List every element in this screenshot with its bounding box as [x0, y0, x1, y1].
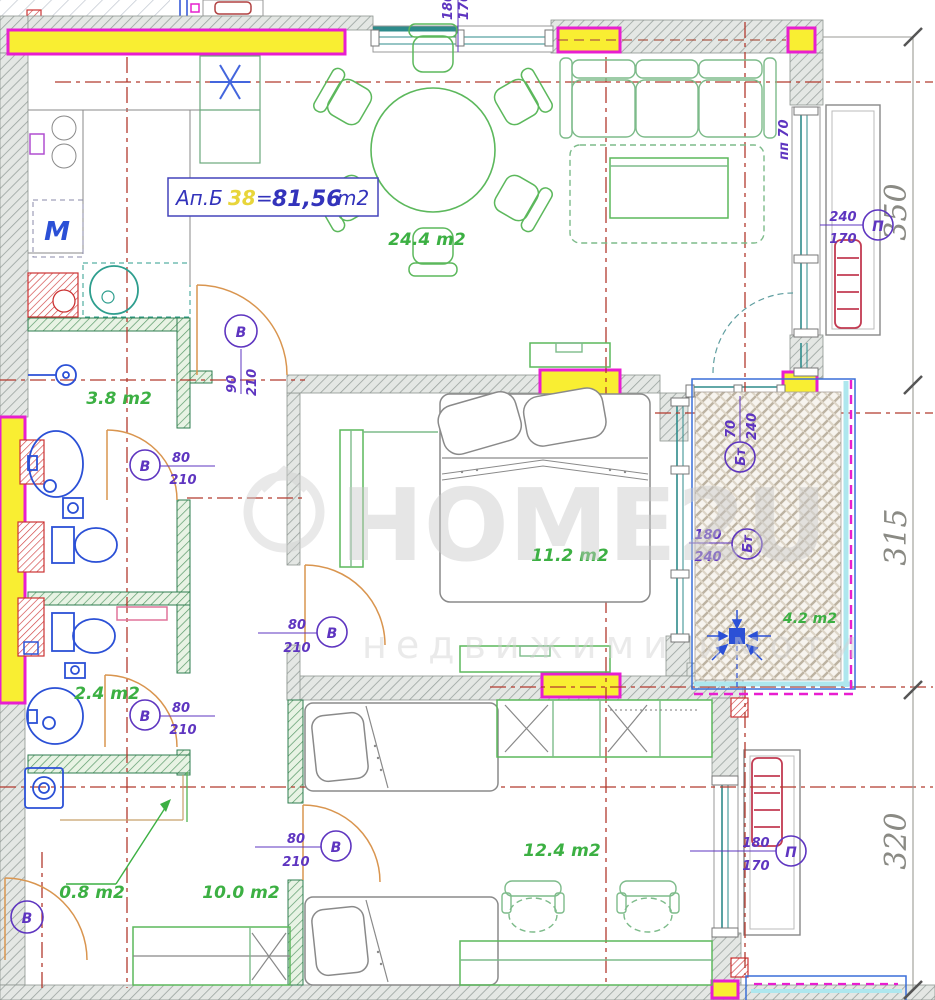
washing-machine [25, 768, 63, 808]
oven-handle [30, 134, 44, 154]
window-size-h: 170 [742, 859, 769, 874]
window-letter: П [785, 845, 797, 861]
door-letter: В [331, 840, 342, 856]
desk-chair-2 [617, 881, 679, 932]
pillow [311, 905, 370, 976]
dimension-320: 320 [879, 812, 914, 869]
kids-wardrobe [497, 700, 712, 757]
watermark-logo [248, 476, 320, 548]
washing-machine-label: М [44, 217, 70, 247]
room-label-kids: 12.4 m2 [523, 841, 600, 861]
watermark-subtitle: недвижими имоти [362, 623, 866, 667]
room-label-bathroom: 3.8 m2 [86, 389, 152, 409]
watermark-brand: HOME2U [340, 467, 827, 584]
balcony-door-letter: Бт [734, 447, 749, 466]
apartment-number: 38 [228, 186, 256, 210]
room-label-hallway: 10.0 m2 [202, 883, 279, 903]
door-size-h: 210 [169, 473, 196, 488]
radiator-right [835, 240, 861, 328]
burner [52, 144, 76, 168]
desk-chair-1 [502, 881, 564, 932]
snowflake-icon [210, 65, 250, 99]
door-size-h: 210 [282, 855, 309, 870]
apartment-area-unit: m2 [337, 186, 369, 210]
room-label-storage: 0.8 m2 [59, 883, 125, 903]
burner [52, 116, 76, 140]
kitchen-sink [90, 266, 138, 314]
balcony-door-swing [713, 293, 793, 373]
window-size-h: 170 [829, 232, 856, 247]
dining-table [371, 88, 495, 212]
top-window-w: 180 [441, 0, 456, 20]
door-size-w: 80 [288, 618, 306, 633]
apartment-label: Ап.Б [174, 186, 223, 210]
dimension-315: 315 [879, 508, 914, 565]
rug [570, 145, 764, 243]
title-box: Ап.Б 38 = 81,56 m2 [168, 178, 378, 216]
storage-leader-arrow [66, 799, 171, 884]
window-letter: П [872, 219, 884, 235]
floor-drain [63, 498, 83, 518]
room-label-living: 24.4 m2 [388, 230, 465, 250]
door-size-h: 210 [283, 641, 310, 656]
room-label-wc: 2.4 m2 [74, 684, 140, 704]
floorplan-canvas: М [0, 0, 935, 1000]
kids-door [303, 805, 380, 882]
watermark: HOME2U недвижими имоти [248, 467, 866, 667]
kids-window [712, 776, 738, 937]
sofa [560, 58, 776, 138]
towel-rail [117, 607, 167, 620]
apartment-area: 81,56 [272, 187, 342, 212]
balcony-door-w: 70 [724, 420, 739, 438]
door-size-w: 90 [225, 375, 240, 393]
tv-cabinet [530, 343, 610, 367]
floorplan-drawing: М [0, 0, 935, 1000]
door-size-w: 80 [172, 701, 190, 716]
pillow [311, 711, 370, 782]
coffee-table [610, 158, 728, 218]
door-size-h: 210 [169, 723, 196, 738]
kids-room-furniture [133, 700, 712, 985]
toilet-tank [52, 527, 74, 563]
door-letter: В [140, 709, 151, 725]
door-size-w: 80 [172, 451, 190, 466]
toilet-bowl [75, 528, 117, 562]
wc-toilet-tank [52, 613, 74, 651]
living-right-window [792, 107, 820, 376]
parapet-label: пп 70 [777, 119, 792, 160]
door-letter: В [22, 911, 33, 927]
living-room-furniture [530, 58, 793, 373]
top-window-h: 170 [457, 0, 472, 20]
door-letter: В [140, 459, 151, 475]
door-size-h: 210 [245, 369, 260, 396]
window-size-w: 240 [829, 210, 856, 225]
shower-head [56, 365, 76, 385]
equals-sign: = [256, 186, 273, 210]
plumbing-risers [18, 440, 44, 656]
window-size-w: 180 [742, 836, 769, 851]
balcony-door-h: 240 [745, 413, 760, 440]
door-letter: В [327, 626, 338, 642]
wc-toilet-bowl [73, 619, 115, 653]
radiator-bottom [752, 758, 782, 846]
door-size-w: 80 [287, 832, 305, 847]
door-letter: В [236, 325, 247, 341]
